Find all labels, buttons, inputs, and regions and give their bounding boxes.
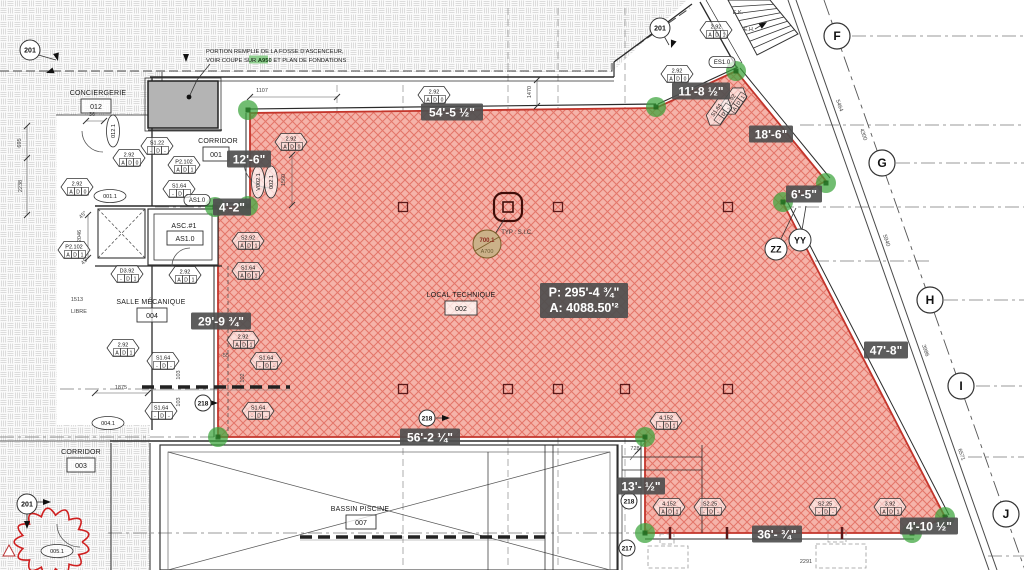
room-number: 002 <box>455 306 467 313</box>
grid-bubble-label: F <box>833 29 840 43</box>
dimension-badge-text: 54'-5 ½" <box>429 105 475 119</box>
hex-tag-title: S1.64 <box>259 356 273 362</box>
hex-cell-value: D <box>247 244 251 250</box>
dimension-badge-text: 47'-8" <box>870 343 903 357</box>
hex-tag-2.92: 2.92AD1 <box>700 22 732 39</box>
dimension-badge-text: 29'-9 ¾" <box>198 314 244 328</box>
rect-tag-label: AS1.0 <box>189 198 206 204</box>
hex-cell-value: D <box>265 364 269 370</box>
ellipse-tag-002.1: 002.1 <box>265 166 278 198</box>
ellipse-tag-V002.1: V002.1 <box>252 166 265 198</box>
room-name: CORRIDOR <box>198 138 238 145</box>
ellipse-tag-label: 001.1 <box>103 194 117 200</box>
annotation-text: E.K. <box>733 10 744 16</box>
hex-tag-title: 2.92 <box>672 69 683 75</box>
hex-cell-value: 1 <box>897 510 900 516</box>
hex-cell-value: 0 <box>298 145 301 151</box>
hex-tag-3.92: 3.92AD1 <box>874 499 906 516</box>
grid-bubble-label: G <box>877 156 886 170</box>
hex-cell-value: D <box>156 149 160 155</box>
hex-tag-title: D3.92 <box>120 269 135 275</box>
hex-cell-value: D <box>73 253 77 259</box>
ellipse-tag-label: 002.1 <box>269 175 275 189</box>
room-name: SALLE MÉCANIQUE <box>116 297 185 306</box>
hex-cell-value: D <box>178 192 182 198</box>
hex-tag-S1.64: S1.64AD1 <box>232 263 264 280</box>
hex-tag-2.92: 2.92AD1 <box>227 332 259 349</box>
vertex-dot-center <box>246 108 251 113</box>
room-name: BASSIN PISCINE <box>331 506 390 513</box>
room-name: LOCAL TECHNIQUE <box>427 292 496 299</box>
hex-cell-value: D <box>162 364 166 370</box>
hex-cell-value: D <box>676 77 680 83</box>
hex-tag-title: S1.64 <box>172 184 186 190</box>
dimension-text: 728 <box>630 446 639 452</box>
annotation-text: TYP : S.I.C. <box>501 230 533 236</box>
hex-cell-value: 1 <box>723 33 726 39</box>
hex-tag-title: P2.102 <box>175 160 192 166</box>
hex-tag-4.152: 4.152AD1 <box>653 499 685 516</box>
hex-tag-2.92: 2.92AD0 <box>275 134 307 151</box>
dimension-text: 695 <box>17 138 23 147</box>
room-number: 003 <box>75 463 87 470</box>
vertex-dot-center <box>781 200 786 205</box>
dimension-text: 2046 <box>77 230 83 242</box>
hex-cell-value: D <box>257 414 261 420</box>
dimension-badge-text: 13'- ½" <box>621 479 660 493</box>
hex-tag-4.152: 4.152-D1 <box>650 413 682 430</box>
dimension-text: 1875 <box>115 385 127 391</box>
hex-tag-2.92: 2.92AD0 <box>113 150 145 167</box>
dimension-badge-text: 12'-6" <box>233 152 266 166</box>
hex-tag-S1.22: S1.22-D- <box>141 138 173 155</box>
leader-dot <box>187 95 192 100</box>
hex-tag-title: 2.92 <box>711 25 722 31</box>
hex-cell-value: 1 <box>255 244 258 250</box>
dimension-text: 36 <box>89 112 95 118</box>
dimension-badge-text: 6'-5" <box>791 187 817 201</box>
hex-tag-title: S1.64 <box>154 406 168 412</box>
hex-cell-value: D <box>128 161 132 167</box>
hex-tag-title: S1.64 <box>241 266 255 272</box>
hex-tag-title: S2.25 <box>703 502 717 508</box>
room-number: 001 <box>210 152 222 159</box>
hex-cell-value: 0 <box>84 190 87 196</box>
detail-bubble-label: 218 <box>198 400 209 407</box>
detail-bubble-label: 201 <box>21 502 33 509</box>
hex-tag-S2.25: S2.25-D- <box>809 499 841 516</box>
hex-tag-title: 2.92 <box>286 137 297 143</box>
hex-tag-title: P2.102 <box>65 245 82 251</box>
dimension-text: -55 <box>221 353 229 359</box>
detail-bubble-label: 201 <box>24 48 36 55</box>
hex-tag-title: S2.92 <box>241 236 255 242</box>
dimension-text: 1107 <box>256 88 268 94</box>
hex-tag-D3.92: D3.92-D1 <box>111 266 143 283</box>
vertex-dot-center <box>824 181 829 186</box>
hex-cell-value: D <box>709 510 713 516</box>
detail-bubble-label: 201 <box>654 26 666 33</box>
rect-tag-label: ES1.0 <box>714 60 731 66</box>
hex-tag-2.92: 2.92AD0 <box>661 66 693 83</box>
hex-cell-value: D <box>433 98 437 104</box>
vertex-dot-center <box>643 531 648 536</box>
hex-cell-value: 0 <box>684 77 687 83</box>
hex-cell-value: D <box>715 33 719 39</box>
hex-cell-value: 0 <box>136 161 139 167</box>
hex-tag-title: S1.64 <box>251 406 265 412</box>
ellipse-tag-label: 004.1 <box>101 421 115 427</box>
ellipse-tag-005.1: 005.1 <box>41 545 73 558</box>
ellipse-tag-001.1: 001.1 <box>94 190 126 203</box>
dimension-badge-text: 4'-2" <box>219 200 245 214</box>
section-marker-bottom: A700 <box>481 249 494 255</box>
section-marker-top: 700.1 <box>479 238 495 244</box>
hex-cell-value: D <box>665 424 669 430</box>
detail-bubble-label: 218 <box>624 498 635 505</box>
hex-tag-title: 2.92 <box>238 335 249 341</box>
annotation-text: E.H. <box>744 27 755 33</box>
dimension-text: 2238 <box>18 180 24 192</box>
hex-cell-value: 1 <box>673 424 676 430</box>
dimension-badge-text: 18'-6" <box>755 127 788 141</box>
hex-tag-S1.64: S1.64-D- <box>250 353 282 370</box>
hex-tag-title: 2.92 <box>72 182 83 188</box>
hex-cell-value: D <box>160 414 164 420</box>
floor-plan-drawing: FGHIJ201201201218218218217ZZYY2.92AD02.9… <box>0 0 1024 570</box>
hex-cell-value: D <box>889 510 893 516</box>
hex-tag-title: S2.25 <box>818 502 832 508</box>
perimeter-value: P: 295'-4 ¾" <box>549 286 620 300</box>
hex-cell-value: D <box>247 274 251 280</box>
vertex-dot-center <box>216 435 221 440</box>
note-line2: VOIR COUPE SUR A950 ET PLAN DE FONDATION… <box>206 58 346 64</box>
dimension-text: 1513 <box>71 297 83 303</box>
dimension-badge-text: 11'-8 ½" <box>678 84 723 98</box>
vertex-dot-center <box>654 105 659 110</box>
grid-bubble-label: J <box>1003 507 1010 521</box>
hex-cell-value: D <box>824 510 828 516</box>
hex-tag-title: S1.64 <box>156 356 170 362</box>
hex-cell-value: D <box>184 278 188 284</box>
area-value: A: 4088.50'² <box>550 301 619 315</box>
hex-tag-title: 2.92 <box>118 343 129 349</box>
grid-bubble-label: H <box>926 293 935 307</box>
floor-plan-viewport: FGHIJ201201201218218218217ZZYY2.92AD02.9… <box>0 0 1024 570</box>
hex-tag-S1.64: S1.64-D- <box>145 403 177 420</box>
hex-cell-value: D <box>242 343 246 349</box>
hex-tag-title: S1.22 <box>150 141 164 147</box>
room-number: 012 <box>90 104 102 111</box>
room-name: CORRIDOR <box>61 449 101 456</box>
dimension-text: 102 <box>240 373 246 382</box>
dimension-badge-text: 4'-10 ½" <box>906 519 952 533</box>
room-name: CONCIERGERIE <box>70 90 127 97</box>
hex-tag-P2.102: P2.102AD1 <box>168 157 200 174</box>
note-line1: PORTION REMPLIE DE LA FOSSE D'ASCENCEUR, <box>206 49 344 55</box>
hex-tag-S1.64: S1.64-D- <box>242 403 274 420</box>
dimension-badge-text: 36'- ¾" <box>757 527 796 541</box>
ellipse-tag-label: V002.1 <box>256 173 262 190</box>
vertex-dot-center <box>734 69 739 74</box>
hex-cell-value: 1 <box>134 277 137 283</box>
dimension-text: 103 <box>176 397 182 406</box>
hex-tag-2.92: 2.92AD1 <box>169 267 201 284</box>
ellipse-tag-label: 012.1 <box>111 124 117 138</box>
detail-bubble-label: ZZ <box>771 244 782 254</box>
detail-bubble-label: 218 <box>422 415 433 422</box>
hex-cell-value: 1 <box>81 253 84 259</box>
grid-bubble-label: I <box>959 379 962 393</box>
dimension-text: 103 <box>176 370 182 379</box>
room-name: ASC.#1 <box>171 223 196 230</box>
hex-cell-value: 1 <box>191 168 194 174</box>
hex-tag-title: 4.152 <box>662 502 676 508</box>
hex-tag-title: 3.92 <box>885 502 896 508</box>
hex-tag-title: 4.152 <box>659 416 673 422</box>
filled-pit <box>148 81 218 128</box>
hex-tag-2.92: 2.92AD0 <box>61 179 93 196</box>
hex-tag-S2.25: S2.25-D- <box>694 499 726 516</box>
detail-bubble-label: 217 <box>622 545 633 552</box>
hex-tag-2.92: 2.92AD0 <box>418 87 450 104</box>
hex-tag-title: 2.92 <box>180 270 191 276</box>
hex-tag-2.92: 2.92AD1 <box>107 340 139 357</box>
dimension-badge-text: 56'-2 ¼" <box>407 430 453 444</box>
ellipse-tag-label: 005.1 <box>50 549 64 555</box>
dimension-text: 2291 <box>800 559 812 565</box>
hex-cell-value: 0 <box>441 98 444 104</box>
room-number: AS1.0 <box>175 236 194 243</box>
hex-cell-value: 1 <box>255 274 258 280</box>
hex-cell-value: 1 <box>130 351 133 357</box>
hex-tag-S1.64: S1.64-D- <box>147 353 179 370</box>
hex-cell-value: D <box>122 351 126 357</box>
dimension-text: 1470 <box>527 86 533 98</box>
hex-tag-title: 2.92 <box>429 90 440 96</box>
ellipse-tag-012.1: 012.1 <box>107 115 120 147</box>
hex-cell-value: D <box>290 145 294 151</box>
hex-cell-value: 1 <box>676 510 679 516</box>
dimension-text: LIBRE <box>71 309 87 315</box>
hex-tag-S2.92: S2.92AD1 <box>232 233 264 250</box>
hex-cell-value: D <box>183 168 187 174</box>
hex-cell-value: D <box>126 277 130 283</box>
ellipse-tag-004.1: 004.1 <box>92 417 124 430</box>
room-number: 004 <box>146 313 158 320</box>
hex-cell-value: 1 <box>192 278 195 284</box>
hex-tag-title: 2.92 <box>124 153 135 159</box>
detail-bubble-label: YY <box>794 235 806 245</box>
vertex-dot-center <box>643 435 648 440</box>
room-number: 007 <box>355 520 367 527</box>
dimension-text: 1560 <box>281 174 287 186</box>
hex-cell-value: D <box>668 510 672 516</box>
hex-cell-value: D <box>76 190 80 196</box>
hex-cell-value: 1 <box>250 343 253 349</box>
